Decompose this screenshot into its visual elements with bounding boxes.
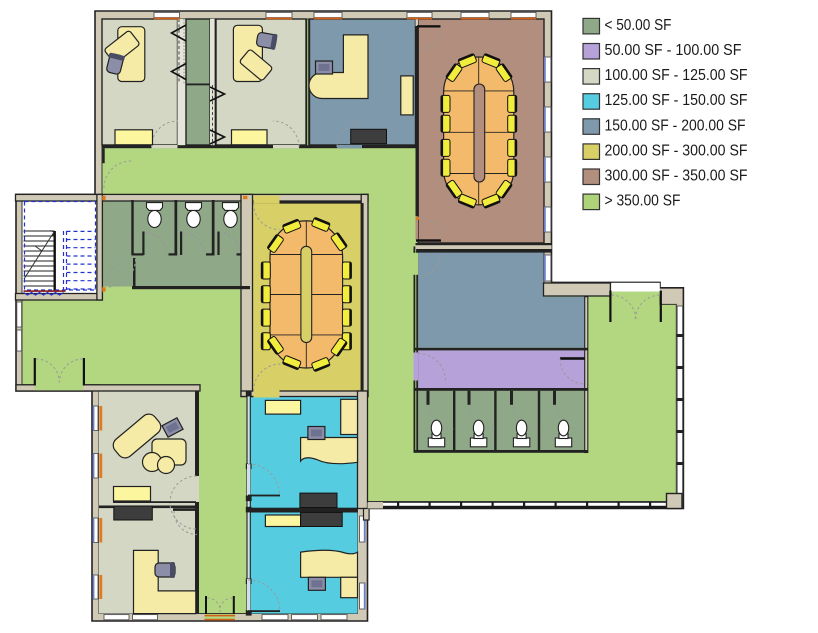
svg-text:200.00 SF - 300.00 SF: 200.00 SF - 300.00 SF — [605, 142, 748, 159]
svg-text:100.00 SF - 125.00 SF: 100.00 SF - 125.00 SF — [605, 67, 748, 84]
svg-text:125.00 SF - 150.00 SF: 125.00 SF - 150.00 SF — [605, 92, 748, 109]
svg-text:150.00 SF - 200.00 SF: 150.00 SF - 200.00 SF — [605, 117, 746, 134]
svg-text:> 350.00 SF: > 350.00 SF — [605, 193, 681, 210]
svg-text:< 50.00 SF: < 50.00 SF — [605, 17, 672, 34]
svg-text:50.00 SF - 100.00 SF: 50.00 SF - 100.00 SF — [605, 42, 742, 59]
svg-text:300.00 SF - 350.00 SF: 300.00 SF - 350.00 SF — [605, 168, 748, 185]
